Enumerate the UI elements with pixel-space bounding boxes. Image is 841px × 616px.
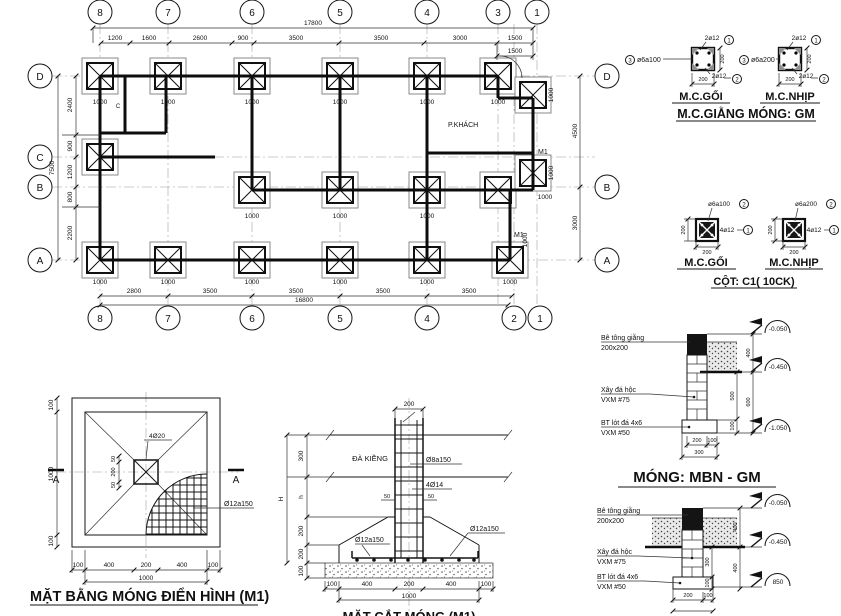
dim-label: 200 (141, 562, 152, 569)
dim-label: 3500 (376, 288, 391, 295)
material-label: Xây đá hộc (601, 387, 637, 394)
dim-label: 1000 (93, 99, 108, 106)
dim-label: 200 (404, 581, 415, 588)
callout-number: 1 (814, 39, 818, 45)
foundation-plan: 8 7 6 5 4 3 1 8 7 6 5 4 2 1 D C B A D B … (28, 0, 619, 330)
rebar-callout: 4Ø20 (149, 433, 165, 440)
grid-label: 4 (424, 8, 430, 19)
grid-label: B (37, 183, 44, 194)
level-label: -0.050 (769, 500, 788, 507)
rebar-callout: 4ø12 (807, 227, 822, 234)
dim-label: 200 (404, 401, 415, 408)
dim-label: 500 (730, 391, 736, 400)
dim-label: 400 (446, 581, 457, 588)
grid-label: C (36, 153, 43, 164)
dim-label: 1000 (48, 466, 55, 481)
callout-number: 2 (829, 203, 833, 209)
dim-label: 100 (705, 578, 711, 587)
dim-label: 200 (789, 250, 798, 256)
callout-number: 3 (628, 59, 632, 65)
dim-label: 200 (692, 438, 701, 444)
grid-bubbles-bottom: 8 7 6 5 4 2 1 (88, 306, 552, 330)
dim-label: 200 (298, 548, 305, 559)
grade-beam-label: ĐÀ KIỀNG (352, 453, 388, 463)
stirrup-callout: ø6a100 (708, 201, 730, 208)
level-label: 850 (773, 579, 784, 586)
beam-section-nhip (779, 48, 801, 70)
dim-label: 400 (733, 563, 739, 572)
material-label: 200x200 (601, 345, 628, 352)
dim-label: 100 (208, 562, 219, 569)
dim-label: 200 (785, 77, 794, 83)
material-label: Xây đá hộc (597, 549, 633, 556)
section-title: M.C.GỐI (684, 255, 727, 269)
stirrup-callout: Ø8a150 (426, 457, 451, 464)
beam-sections-gm: 2ø12 1 2ø12 2 3 ø6a100 200 200 M.C.GỐI 2… (626, 35, 829, 121)
dim-label: 1000 (245, 99, 260, 106)
detail-group-title: CỘT: C1( 10CK) (713, 275, 795, 288)
callout-number: 2 (742, 203, 746, 209)
dim-label: 200 (698, 77, 707, 83)
stirrup-callout: ø6a200 (751, 57, 775, 64)
dim-label: 50 (428, 494, 434, 500)
dim-label: 1000 (245, 213, 260, 220)
dim-label: 200 (702, 250, 711, 256)
dim-label: 1000 (333, 213, 348, 220)
dim-label: 900 (238, 35, 249, 42)
dim-label: 1000 (420, 99, 435, 106)
dim-label: 3500 (462, 288, 477, 295)
dim-label: 7500 (49, 160, 56, 175)
dim-label: 50 (384, 494, 390, 500)
dim-label: 3500 (374, 35, 389, 42)
grid-label: 6 (249, 314, 255, 325)
footing-plan-m1: 4Ø20 Ø12a150 A A 100 1000 100 50 200 50 … (30, 392, 269, 605)
grid-label: 5 (337, 314, 343, 325)
dim-label: 3500 (289, 35, 304, 42)
grid-label: 8 (97, 8, 103, 19)
dim-label: 100 (481, 581, 492, 588)
grid-label: 7 (165, 8, 171, 19)
material-label: VXM #75 (597, 559, 626, 566)
dim-label: 900 (67, 140, 74, 151)
dim-label: 600 (746, 397, 752, 406)
dim-label: 100 (327, 581, 338, 588)
dim-label: 1600 (142, 35, 157, 42)
material-label: VXM #75 (601, 397, 630, 404)
dim-label: 200 (720, 54, 726, 63)
beam-section-goi (692, 48, 714, 70)
dim-label: 1000 (402, 593, 417, 600)
mbn-detail-2: -0.050 -0.450 850 300 100 400 400 200 10… (597, 492, 790, 611)
rebar-callout: Ø12a150 (470, 526, 499, 533)
callout-number: 3 (742, 59, 746, 65)
dim-label: 1000 (333, 279, 348, 286)
dim-label: 400 (746, 348, 752, 357)
level-label: -1.050 (769, 425, 788, 432)
material-label: Bê tông giằng (601, 333, 644, 342)
rebar-callout: 2ø12 (705, 35, 720, 42)
dim-label: 200 (768, 225, 774, 234)
wall-footing-details: -0.050 -0.450 -1.050 500 100 400 600 200… (597, 318, 790, 611)
grid-label: 2 (511, 314, 517, 325)
dim-label: 1000 (333, 99, 348, 106)
detail-title: MẶT BẰNG MÓNG ĐIỂN HÌNH (M1) (30, 587, 269, 605)
dim-label: 300 (298, 450, 305, 461)
dim-label: 100 (730, 421, 736, 430)
grid-label: D (603, 72, 610, 83)
callout-number: 2 (822, 78, 826, 84)
dim-label: 1200 (108, 35, 123, 42)
drawing-sheet: 8 7 6 5 4 3 1 8 7 6 5 4 2 1 D C B A D B … (0, 0, 841, 616)
footing-section-detail: 200 ĐÀ KIỀNG Ø8a150 4Ø14 50 50 Ø12a150 Ø… (278, 398, 512, 616)
callout-number: 1 (746, 229, 750, 235)
dim-label: 4500 (572, 123, 579, 138)
grid-label: D (36, 72, 43, 83)
dim-label: 800 (67, 191, 74, 202)
dim-label: 400 (733, 522, 739, 531)
grid-label: 6 (249, 8, 255, 19)
rebar-callout: Ø12a150 (224, 501, 253, 508)
rebar-callout: 4Ø14 (426, 482, 443, 489)
material-label: VXM #50 (597, 584, 626, 591)
dim-label: 100 (703, 593, 712, 599)
grid-label: A (604, 256, 611, 267)
dim-label: 400 (104, 562, 115, 569)
mbn-detail-1: -0.050 -0.450 -1.050 500 100 400 600 200… (601, 318, 790, 460)
dim-label: 3500 (289, 288, 304, 295)
dim-label: 1000 (538, 194, 553, 201)
dim-label: 1000 (161, 99, 176, 106)
dim-label: 400 (362, 581, 373, 588)
dim-label: 300 (694, 450, 703, 456)
dim-label: 2400 (67, 97, 74, 112)
rebar-callout: 4ø12 (720, 227, 735, 234)
dim-label: 200 (298, 525, 305, 536)
grid-label: 8 (97, 314, 103, 325)
dim-label: 300 (705, 557, 711, 566)
dim-label: 200 (807, 54, 813, 63)
dim-label: 100 (48, 399, 55, 410)
grid-label: 7 (165, 314, 171, 325)
dim-label: 400 (177, 562, 188, 569)
section-title: M.C.NHỊP (769, 257, 819, 269)
footings (82, 58, 551, 278)
material-label: 200x200 (597, 518, 624, 525)
dim-label: 100 (73, 562, 84, 569)
section-title: M.C.NHỊP (765, 91, 815, 103)
dim-label: 2800 (127, 288, 142, 295)
dim-label: 3000 (453, 35, 468, 42)
room-label: P.KHÁCH (448, 120, 478, 129)
dim-label: 3500 (203, 288, 218, 295)
level-label: -0.450 (769, 364, 788, 371)
dim-label: 3000 (572, 215, 579, 230)
dim-label: 1000 (139, 575, 154, 582)
plan-dims-right: 4500 3000 (572, 76, 580, 260)
dim-label: 50 (111, 456, 117, 462)
column-section-goi (696, 219, 718, 241)
material-label: BT lót đá 4x6 (601, 420, 642, 427)
detail-title: MÓNG: MBN - GM (633, 468, 760, 486)
grid-label: B (604, 183, 611, 194)
grid-label: 5 (337, 8, 343, 19)
grid-label: 4 (424, 314, 430, 325)
level-label: -0.450 (769, 539, 788, 546)
dim-label: 1500 (508, 35, 523, 42)
drawing-canvas: 8 7 6 5 4 3 1 8 7 6 5 4 2 1 D C B A D B … (0, 0, 841, 616)
dim-label: 17800 (304, 20, 322, 27)
dim-label: 1000 (491, 99, 506, 106)
dim-label: 1000 (420, 279, 435, 286)
grid-bubbles-right: D B A (595, 64, 619, 272)
section-title: M.C.GỐI (679, 89, 722, 103)
column-sections-c1: ø6a100 2 4ø12 1 200 200 M.C.GỐI ø6a200 2… (677, 200, 839, 289)
dim-label: 100 (707, 438, 716, 444)
stirrup-callout: ø6a200 (795, 201, 817, 208)
dim-label: 1000 (93, 279, 108, 286)
footing-type-label: M1 (514, 232, 524, 239)
footing-type-label: M1 (538, 149, 548, 156)
dim-label: 1000 (420, 213, 435, 220)
level-marker-icon (749, 571, 790, 587)
material-label: Bê tông giằng (597, 506, 640, 515)
dim-label: 2600 (193, 35, 208, 42)
column-section-nhip (783, 219, 805, 241)
material-label: BT lót đá 4x6 (597, 574, 638, 581)
dim-label: 1000 (548, 87, 555, 102)
grid-label: 3 (495, 8, 501, 19)
section-marker: A (233, 475, 240, 486)
rebar-callout: 2ø12 (792, 35, 807, 42)
dim-label: 1000 (245, 279, 260, 286)
detail-title-cropped: MẶT CẮT MÓNG (M1) (343, 609, 476, 616)
dim-label: 16800 (295, 297, 313, 304)
grid-label: 1 (534, 8, 540, 19)
callout-number: 2 (735, 78, 739, 84)
grid-label: 1 (537, 314, 543, 325)
rebar-callout: Ø12a150 (355, 537, 384, 544)
dim-label: 100 (298, 565, 305, 576)
grid-label: A (37, 256, 44, 267)
dim-label: 1200 (67, 164, 74, 179)
dim-label: h (298, 495, 305, 499)
dim-label: 1000 (548, 165, 555, 180)
dim-label: 200 (683, 593, 692, 599)
dim-label: 1000 (161, 279, 176, 286)
dim-label: 100 (48, 535, 55, 546)
dim-label: 200 (681, 225, 687, 234)
column-mark-label: C (116, 104, 121, 110)
plan-dims-top: 17800 1200 1600 2600 900 3500 3500 3000 … (93, 20, 533, 60)
material-label: VXM #50 (601, 430, 630, 437)
callout-number: 1 (727, 39, 731, 45)
stirrup-callout: ø6a100 (637, 57, 661, 64)
plan-dims-bottom: 2800 3500 3500 3500 3500 16800 (100, 288, 512, 305)
dim-label: H (278, 496, 285, 501)
level-label: -0.050 (769, 326, 788, 333)
dim-label: 200 (111, 467, 117, 476)
dim-label: 1500 (508, 48, 523, 55)
detail-group-title: M.C.GIẰNG MÓNG: GM (677, 106, 815, 121)
dim-label: 1000 (503, 279, 518, 286)
callout-number: 1 (832, 229, 836, 235)
dim-label: 2200 (67, 225, 74, 240)
dim-label: 50 (111, 482, 117, 488)
